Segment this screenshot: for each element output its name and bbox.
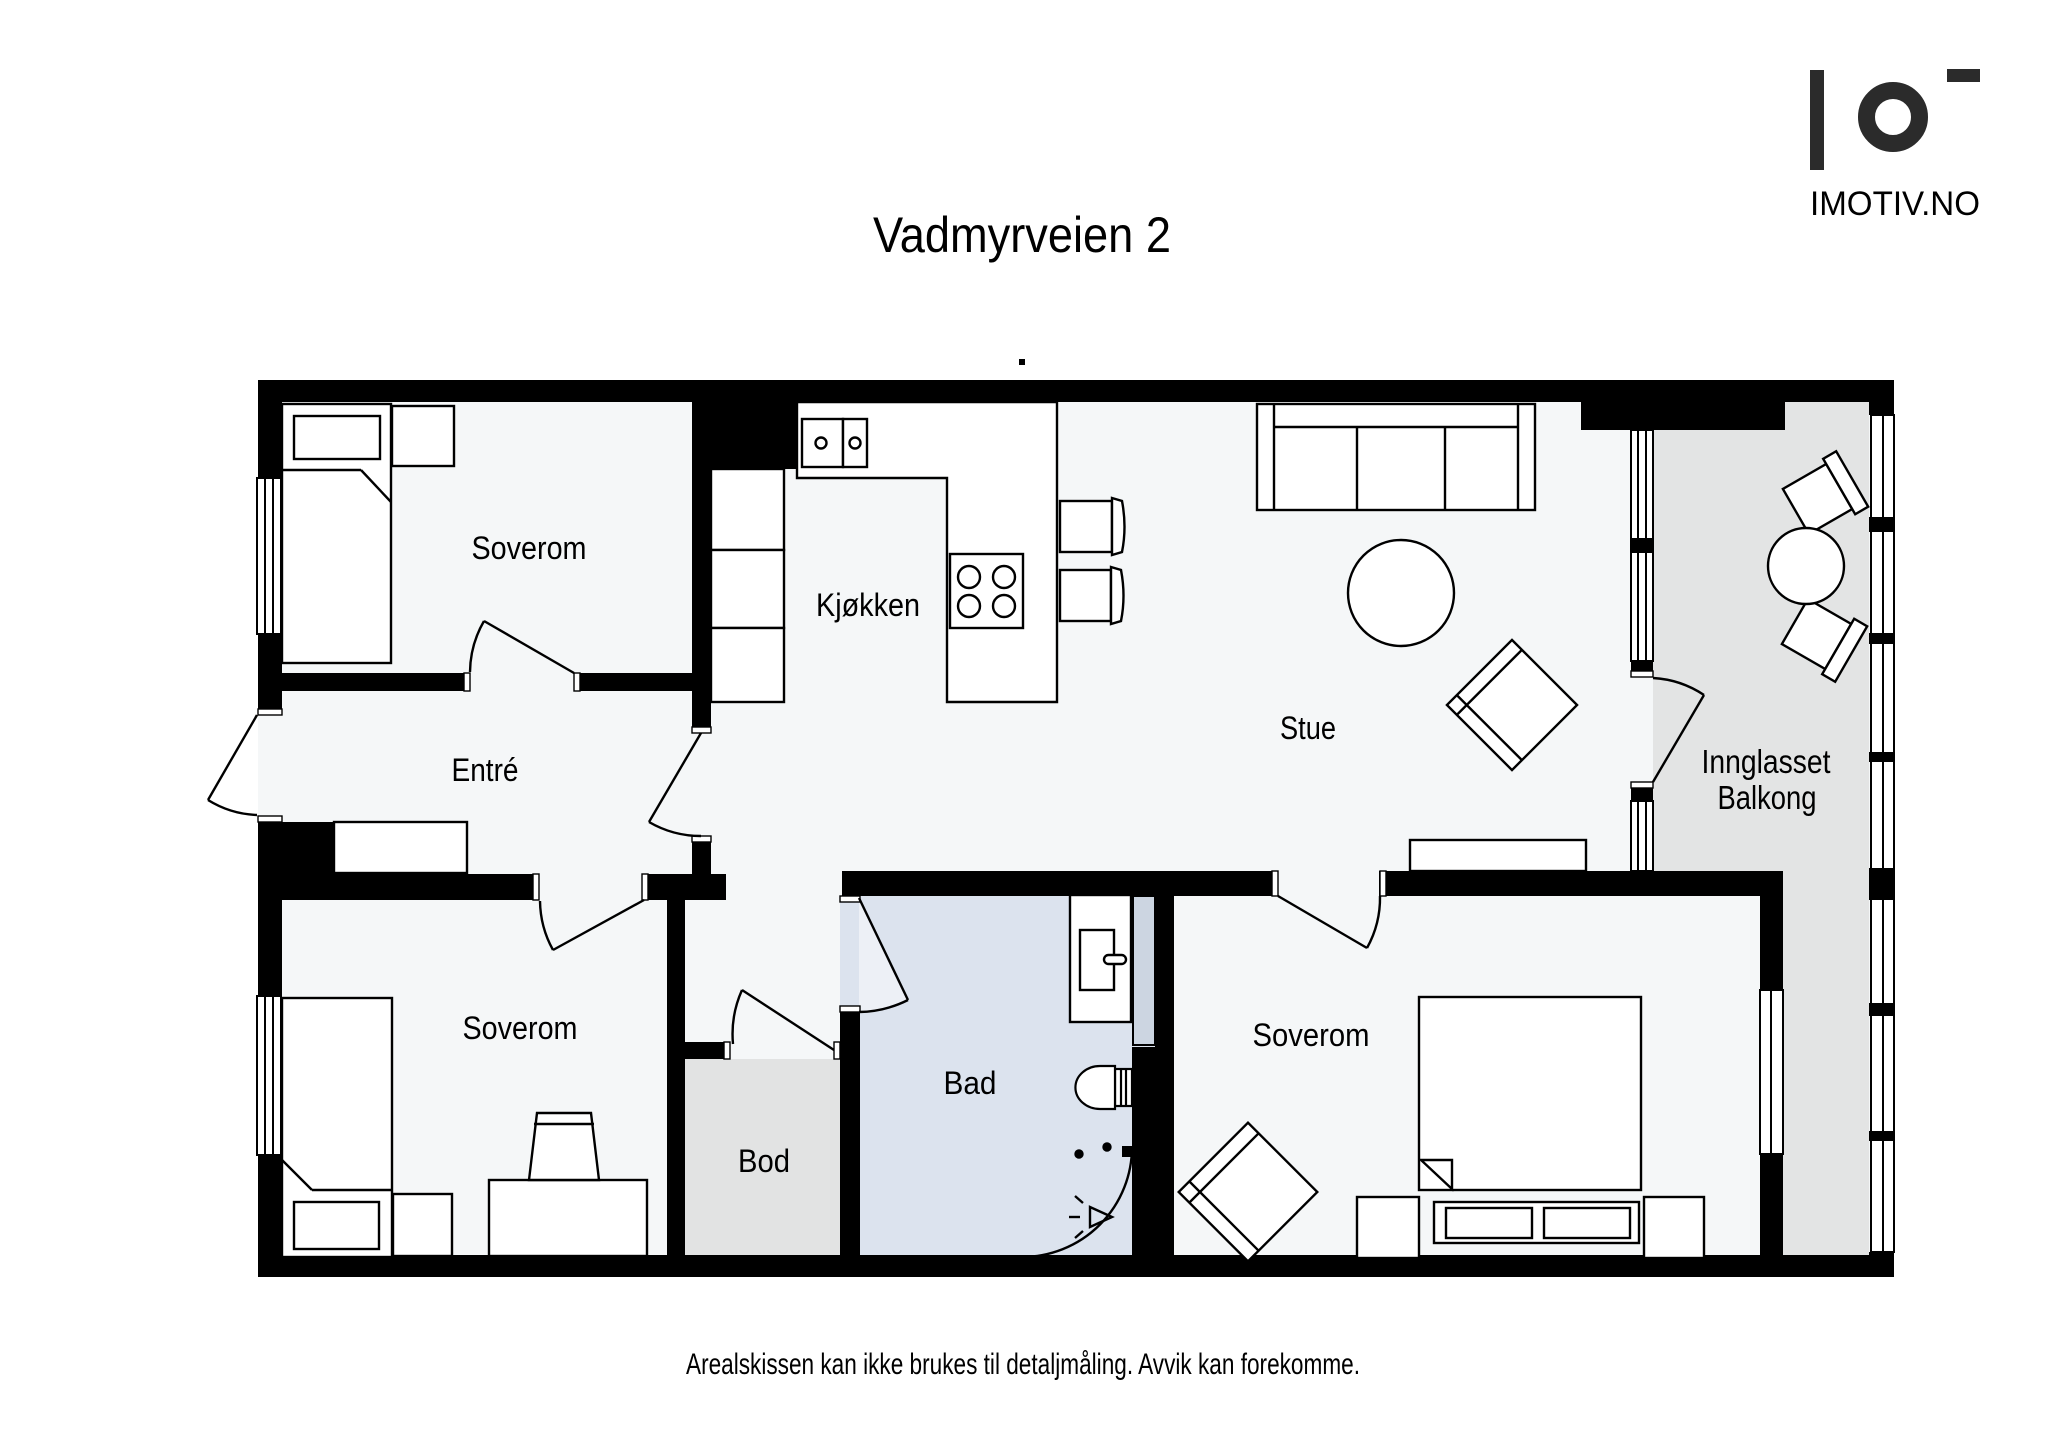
svg-text:Entré: Entré [452,752,519,788]
svg-text:Soverom: Soverom [463,1010,578,1046]
svg-text:Innglasset: Innglasset [1702,743,1831,780]
svg-text:Kjøkken: Kjøkken [816,587,920,623]
svg-text:IMOTIV.NO: IMOTIV.NO [1810,185,1980,223]
svg-text:Soverom: Soverom [472,530,587,566]
svg-text:Bad: Bad [944,1065,997,1101]
svg-text:Arealskissen kan ikke brukes t: Arealskissen kan ikke brukes til detaljm… [686,1348,1360,1381]
svg-text:Stue: Stue [1280,710,1336,746]
svg-text:Vadmyrveien 2: Vadmyrveien 2 [873,207,1171,263]
svg-text:Soverom: Soverom [1253,1017,1370,1053]
svg-text:Balkong: Balkong [1718,779,1817,816]
svg-text:Bod: Bod [738,1143,790,1179]
